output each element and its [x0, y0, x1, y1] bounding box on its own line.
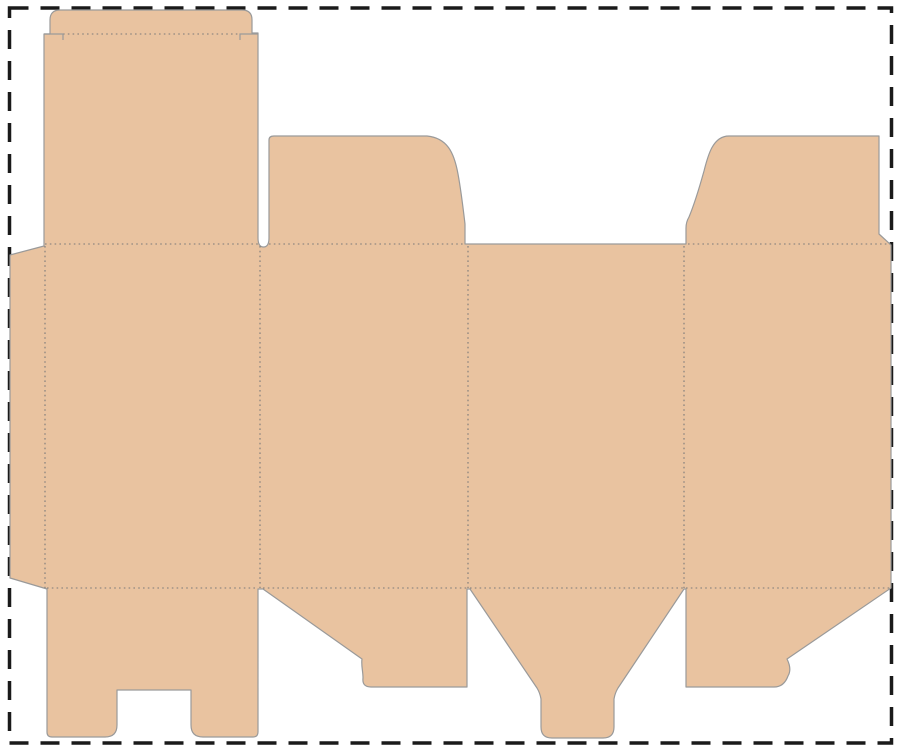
dieline-diagram: Die-cut packaging template (box dieline)… — [0, 0, 900, 750]
dieline-page: Die-cut packaging template (box dieline)… — [0, 0, 900, 750]
